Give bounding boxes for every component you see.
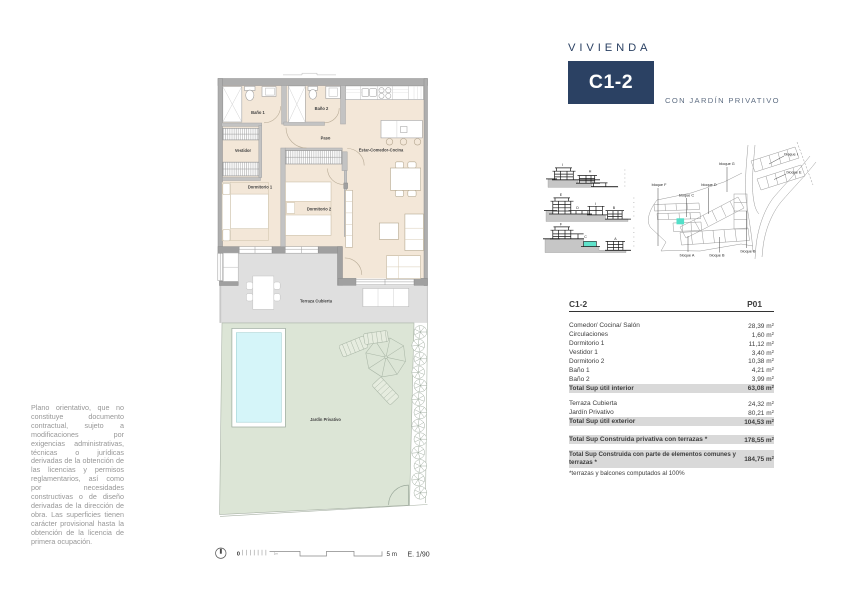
- svg-text:Dormitorio 1: Dormitorio 1: [248, 185, 273, 190]
- svg-text:bloque E: bloque E: [787, 171, 802, 175]
- svg-text:Vestidor: Vestidor: [235, 148, 252, 153]
- svg-text:1m: 1m: [274, 552, 279, 556]
- svg-text:0: 0: [237, 551, 240, 557]
- svg-text:H: H: [589, 170, 592, 174]
- svg-text:B: B: [613, 206, 616, 210]
- svg-text:I: I: [595, 202, 596, 206]
- svg-text:bloque G: bloque G: [719, 162, 734, 166]
- svg-text:5 m: 5 m: [387, 551, 398, 558]
- svg-text:Baño 2: Baño 2: [315, 106, 329, 111]
- svg-text:E. 1/90: E. 1/90: [408, 552, 430, 559]
- svg-text:bloque F: bloque F: [652, 183, 667, 187]
- svg-text:Paso: Paso: [321, 136, 331, 141]
- svg-text:Estar-Comedor-Cocina: Estar-Comedor-Cocina: [359, 148, 404, 153]
- svg-text:bloque I: bloque I: [784, 153, 798, 157]
- svg-text:Terraza Cubierta: Terraza Cubierta: [300, 298, 333, 303]
- svg-text:Dormitorio 2: Dormitorio 2: [307, 207, 332, 212]
- svg-text:Jardín Privativo: Jardín Privativo: [310, 417, 341, 422]
- svg-text:bloque C: bloque C: [679, 193, 694, 197]
- svg-text:D: D: [576, 206, 579, 210]
- svg-text:bloque D: bloque D: [701, 183, 716, 187]
- svg-text:A: A: [614, 237, 617, 241]
- svg-text:bloque B: bloque B: [741, 250, 756, 254]
- svg-text:F: F: [560, 222, 563, 226]
- svg-text:bloque A: bloque A: [680, 254, 695, 258]
- svg-text:bloque B: bloque B: [710, 254, 725, 258]
- svg-text:Baño 1: Baño 1: [251, 110, 265, 115]
- svg-text:C: C: [584, 235, 587, 239]
- svg-text:E: E: [560, 193, 563, 197]
- svg-text:I: I: [562, 163, 563, 167]
